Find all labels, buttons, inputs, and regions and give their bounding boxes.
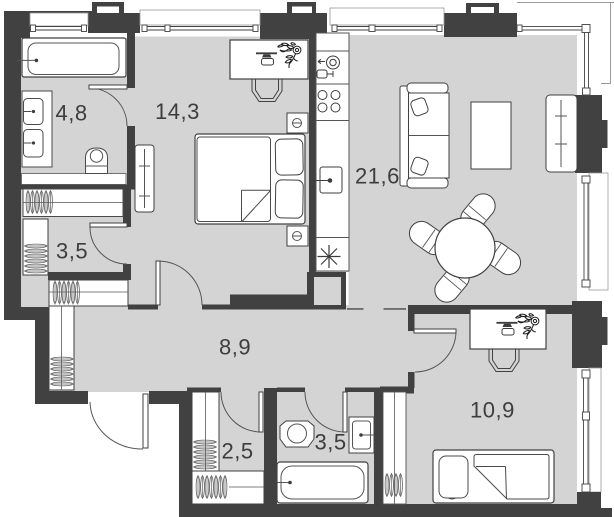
svg-text:21,6: 21,6	[355, 164, 400, 189]
svg-text:4,8: 4,8	[56, 101, 88, 126]
svg-text:14,3: 14,3	[155, 99, 200, 124]
svg-text:3,5: 3,5	[56, 239, 88, 264]
svg-text:2,5: 2,5	[222, 439, 254, 464]
svg-text:10,9: 10,9	[470, 398, 515, 423]
svg-text:3,5: 3,5	[315, 430, 347, 455]
svg-text:8,9: 8,9	[219, 335, 251, 360]
